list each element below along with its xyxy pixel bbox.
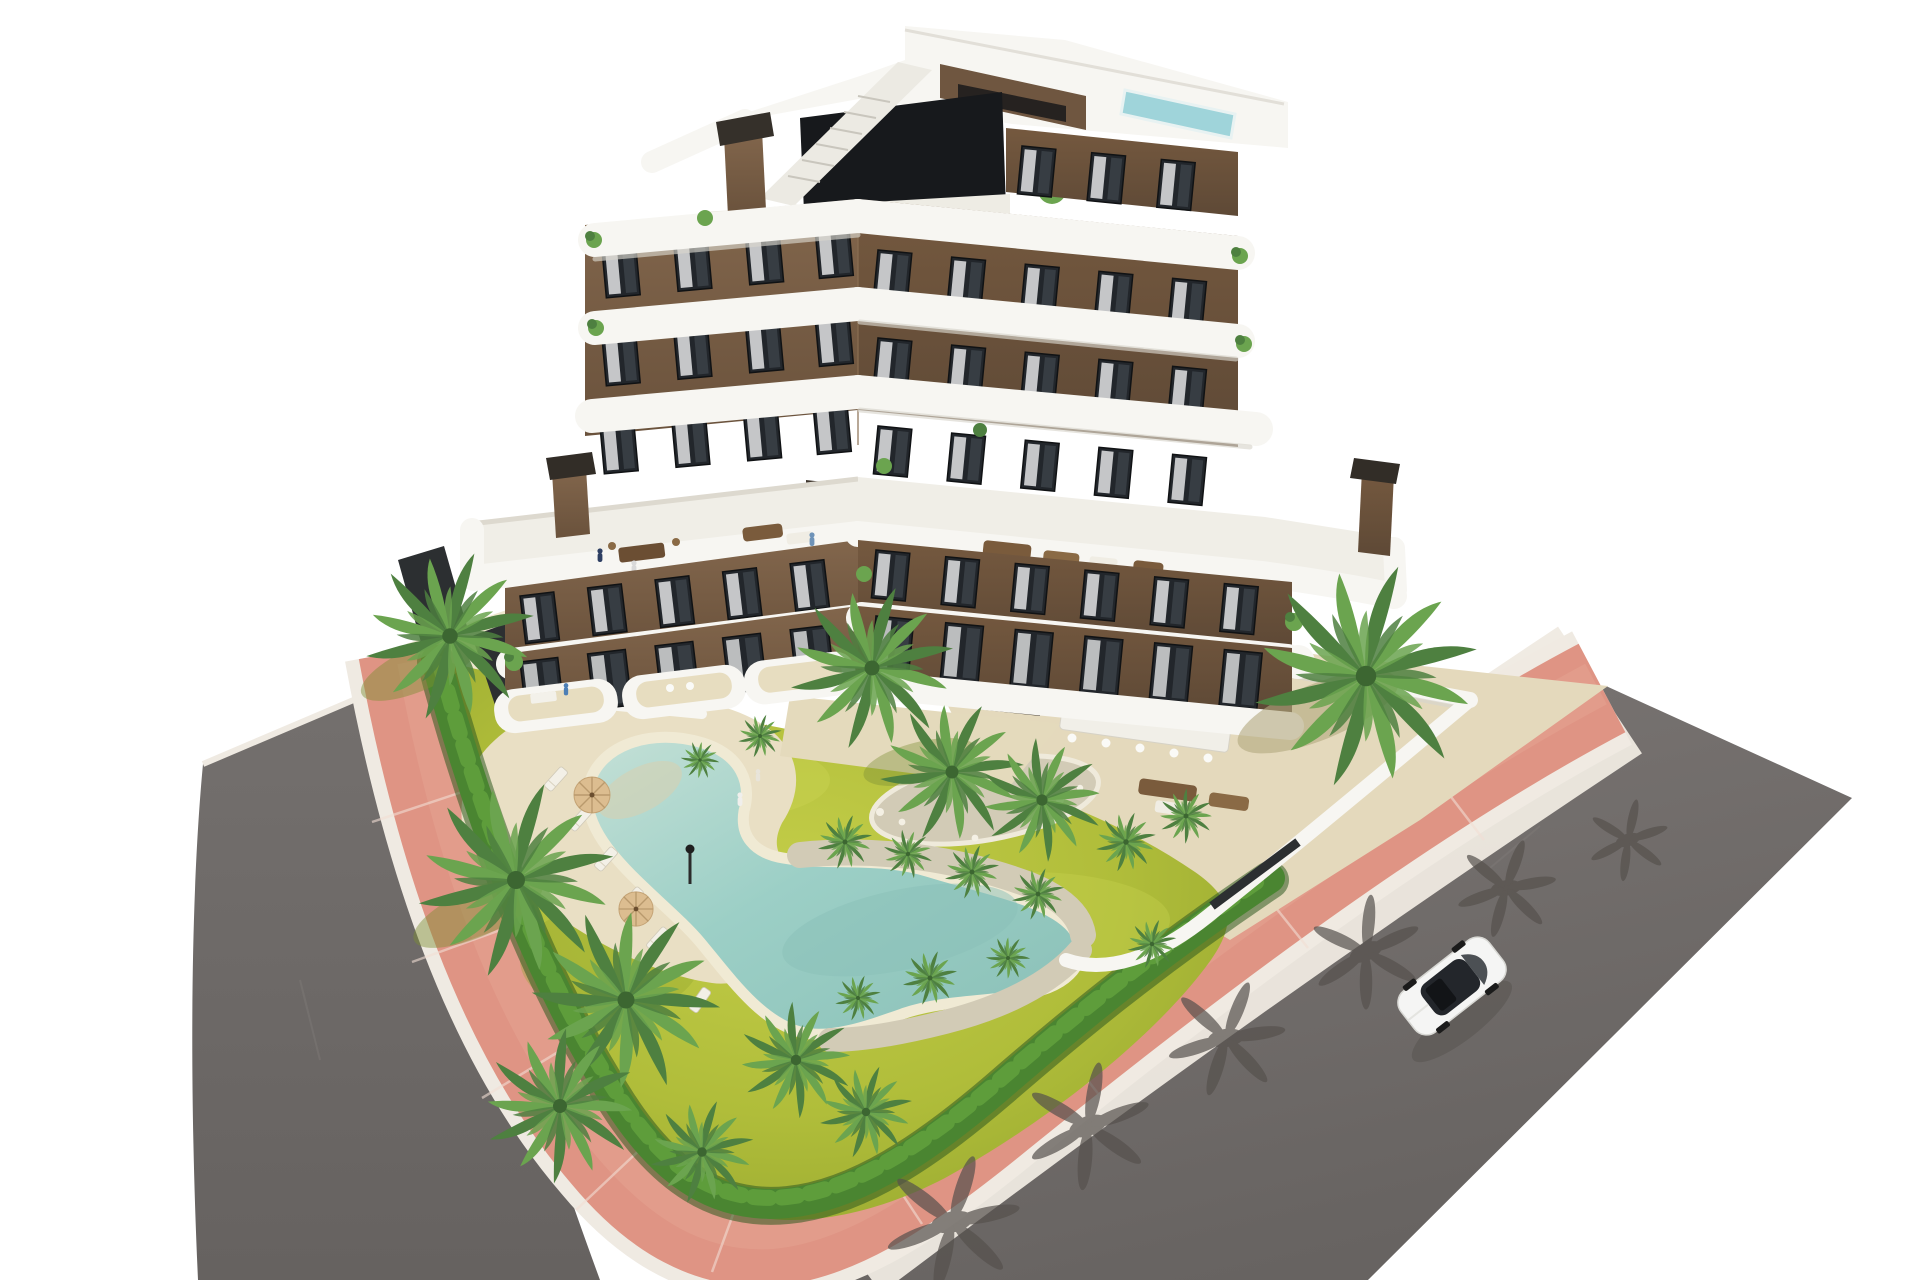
person (756, 769, 761, 781)
person (737, 792, 742, 806)
person (809, 532, 814, 546)
apartment-building (470, 26, 1400, 786)
tower-walls (585, 199, 1256, 505)
chimney-cap (546, 452, 596, 480)
chimney-cap (1350, 458, 1400, 484)
render-canvas: Aerial architectural render — modern apa… (0, 0, 1920, 1280)
aerial-render (0, 0, 1920, 1280)
person (597, 548, 602, 562)
parasol (619, 892, 653, 926)
parasol (574, 777, 610, 813)
left-wing (470, 452, 858, 735)
person (564, 683, 569, 695)
